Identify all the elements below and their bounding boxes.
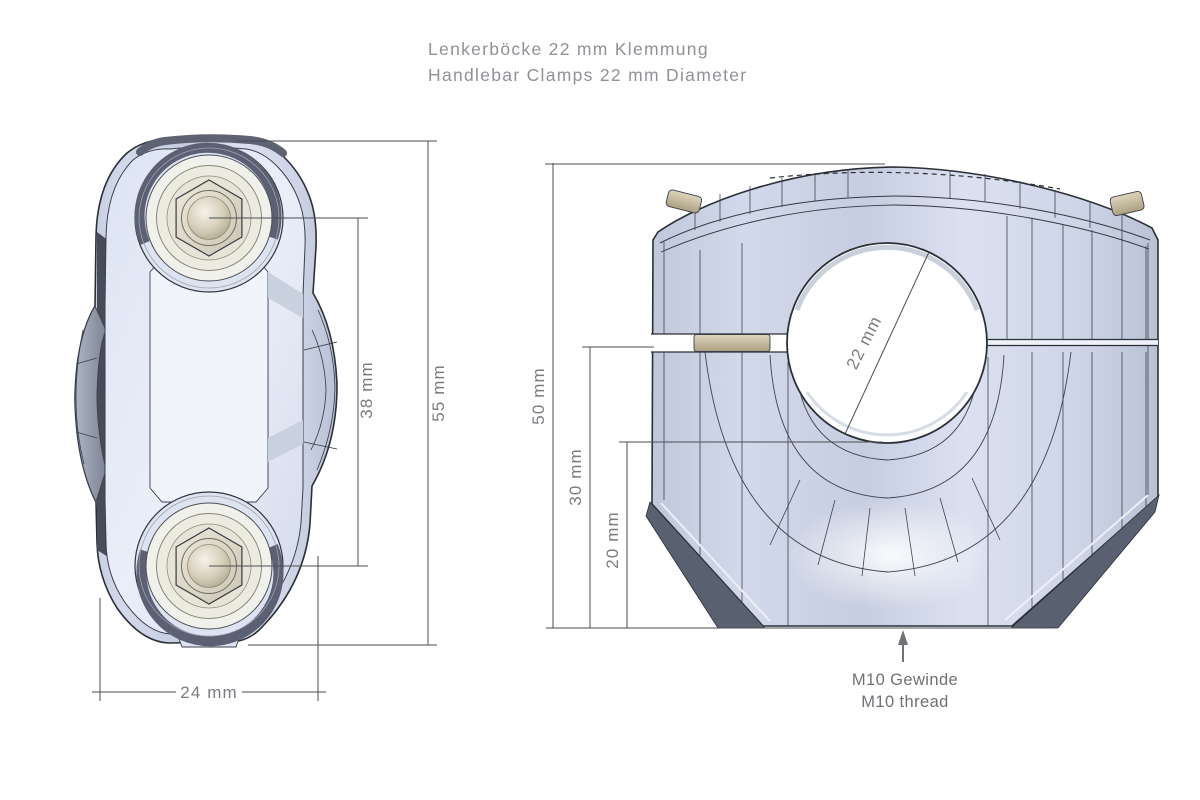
- top-view-pocket: [150, 258, 268, 502]
- bolt-head-top-right: [1109, 191, 1144, 217]
- front-view: 22 mm 50 mm 30 mm 20 mm M10 Gewinde M10 …: [529, 163, 1159, 711]
- arrow-up-head: [898, 630, 908, 645]
- thread-note-german: M10 Gewinde: [852, 671, 958, 689]
- technical-drawing-page: Lenkerböcke 22 mm Klemmung Handlebar Cla…: [0, 0, 1200, 800]
- drawing-canvas: 38 mm 55 mm 24 mm: [0, 0, 1200, 800]
- dim-label-24mm: 24 mm: [180, 683, 237, 702]
- clamp-split-right: [987, 340, 1158, 346]
- clamp-gap-left: [651, 334, 790, 352]
- dim-label-38mm: 38 mm: [357, 361, 376, 418]
- clamp-bolt-bottom: [135, 492, 283, 641]
- dim-label-30mm: 30 mm: [566, 448, 585, 505]
- dim-label-50mm: 50 mm: [529, 367, 548, 424]
- bolt-head-top-left: [665, 189, 702, 214]
- top-view: 38 mm 55 mm 24 mm: [75, 137, 448, 702]
- gap-spacer-washer: [694, 335, 770, 352]
- thread-note-english: M10 thread: [861, 693, 948, 711]
- thread-note: M10 Gewinde M10 thread: [852, 630, 958, 711]
- bottom-highlight: [785, 500, 995, 610]
- dim-label-20mm: 20 mm: [603, 511, 622, 568]
- dim-label-55mm: 55 mm: [429, 364, 448, 421]
